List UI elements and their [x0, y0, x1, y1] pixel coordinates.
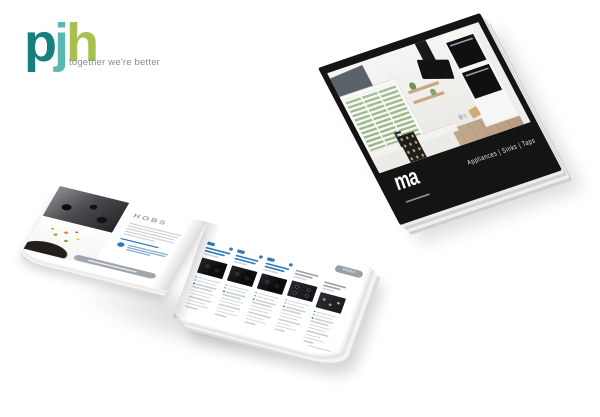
product-image-gas-hob	[315, 292, 346, 314]
badge-icon	[267, 257, 275, 262]
spec-lines	[303, 311, 339, 348]
open-catalog-right-page: Hobs	[173, 222, 370, 360]
badge-icon	[237, 249, 245, 254]
promo-image: pjh together we're better	[0, 0, 600, 400]
product-image-induction-hob	[197, 257, 228, 279]
brand-dot-icon	[259, 255, 264, 259]
info-icon	[116, 242, 125, 248]
spec-lines	[244, 292, 280, 329]
logo-letter-p: p	[24, 13, 54, 73]
product-image-induction-hob	[227, 265, 258, 287]
left-page-pill-banner	[73, 254, 157, 279]
product-image-induction-hob	[257, 273, 288, 295]
product-columns	[183, 241, 353, 350]
product-image-gas-hob	[287, 280, 318, 302]
spec-lines	[275, 299, 311, 336]
brand-dot-icon	[288, 263, 293, 267]
brand-tagline: together we're better	[69, 57, 160, 68]
badge-icon	[207, 241, 215, 246]
brand-dot-icon	[229, 247, 234, 251]
brand-logo: pjh together we're better	[24, 16, 160, 68]
open-catalog-left-page: HOBS	[20, 186, 207, 291]
intro-text-column: HOBS	[115, 213, 196, 263]
spec-lines	[185, 276, 221, 313]
spec-lines	[215, 284, 251, 321]
info-text-lines	[125, 245, 179, 264]
logo-letter-j: j	[54, 13, 66, 73]
